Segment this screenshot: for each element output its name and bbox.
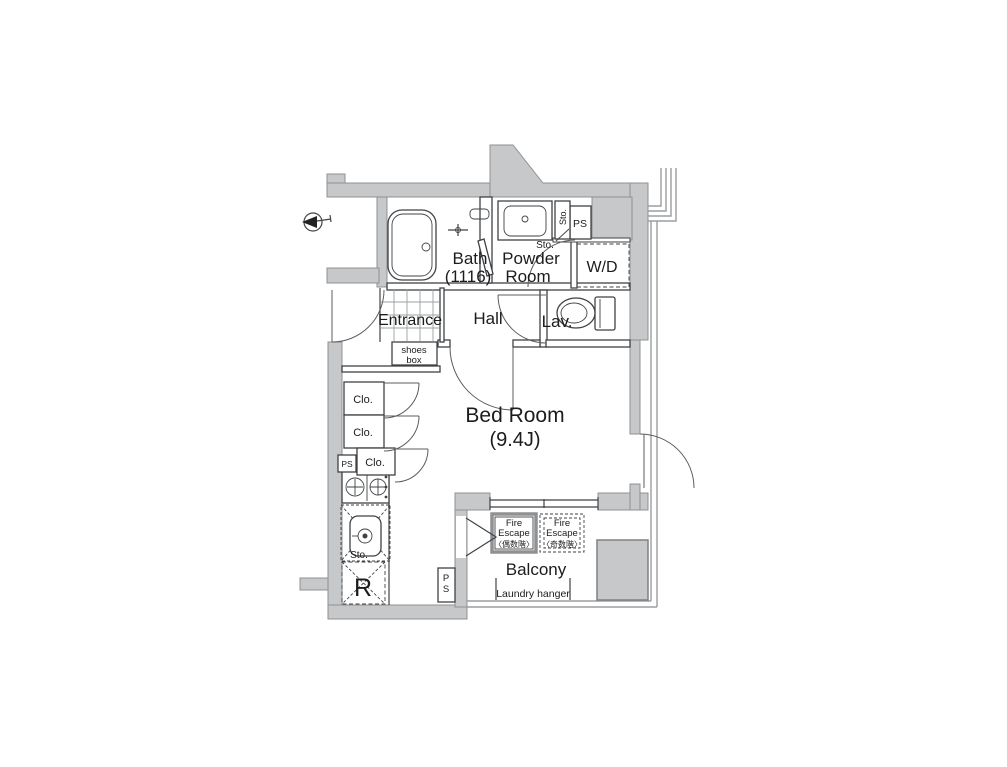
label-laundry-hanger: Laundry hanger (496, 588, 570, 600)
label-powder-2: Room (505, 267, 550, 286)
wall-stub-bottom-left (300, 578, 328, 590)
balcony-window (490, 497, 598, 510)
closet-3-door-arc (395, 449, 428, 482)
label-washer-dryer: W/D (586, 259, 617, 276)
wall-stub-left (327, 268, 379, 283)
floor-plan-canvas: Bath (1116) Powder Room W/D PS Sto. Sto.… (0, 0, 1007, 767)
boundary-elbow-2 (648, 168, 666, 211)
label-closet-3: Clo. (365, 457, 385, 469)
wall-east-bedroom (630, 340, 640, 434)
sink-faucet (363, 534, 368, 539)
north-arrow (302, 213, 331, 231)
label-bath: Bath (453, 249, 488, 268)
label-entrance: Entrance (378, 312, 442, 329)
label-sto-leader: Sto. (536, 240, 554, 251)
boundary-elbow-3 (648, 168, 671, 216)
label-hall: Hall (473, 309, 502, 328)
label-balcony: Balcony (506, 560, 567, 579)
label-closet-2: Clo. (353, 427, 373, 439)
wall-top (327, 183, 497, 197)
label-fire-even-2: Escape (498, 528, 530, 539)
label-bedroom: Bed Room (465, 404, 564, 427)
wall-bottom (328, 605, 467, 619)
label-ps-left: PS (341, 459, 353, 469)
bathtub (388, 210, 436, 280)
north-arrow-head (302, 216, 317, 228)
wall-south-pier-left (455, 493, 490, 510)
bathtub-outer (388, 210, 436, 280)
label-ps-bottom-s: S (443, 584, 449, 595)
closet-1-door-arc (384, 383, 419, 418)
label-shoes-box-2: box (406, 355, 422, 366)
shower-faucet-icon (448, 224, 468, 236)
label-powder-1: Powder (502, 249, 560, 268)
wall-right-upper (630, 183, 648, 340)
balcony-door-opening (456, 516, 466, 558)
powder-vanity-sink (498, 201, 552, 240)
boundary-elbow-1 (648, 168, 661, 206)
wall-left (328, 342, 342, 608)
label-lav: Lav. (542, 312, 573, 331)
toilet-tank (595, 297, 615, 330)
entrance-door-arc (332, 290, 384, 342)
label-sto-kitchen: Sto. (350, 550, 368, 561)
bedroom-door-arc (450, 347, 513, 410)
label-sto-vertical: Sto. (558, 209, 568, 225)
label-fire-odd-3: 〈奇数階〉 (542, 539, 582, 549)
wall-hall-bottom-right (513, 340, 540, 347)
wall-lav-bottom (546, 340, 630, 347)
east-door-arc (640, 434, 694, 488)
label-fire-odd-2: Escape (546, 528, 578, 539)
label-closet-1: Clo. (353, 394, 373, 406)
wall-corner-mass (592, 197, 632, 240)
balcony-structure-block (597, 540, 648, 600)
label-ps-top: PS (573, 218, 587, 230)
window-ticks (490, 497, 598, 510)
stove-knob-1 (385, 476, 388, 479)
wall-storage-nook (571, 240, 577, 288)
label-bedroom-size: (9.4J) (489, 429, 540, 451)
wall-east-pier (630, 484, 640, 510)
wall-below-shoes-box (342, 366, 440, 372)
lav-door-arc (498, 295, 546, 343)
wall-top-protrusion (490, 145, 648, 197)
stove-knob-3 (385, 496, 388, 499)
floor-plan-drawing: Bath (1116) Powder Room W/D PS Sto. Sto.… (0, 0, 1007, 767)
label-ps-bottom-p: P (443, 573, 449, 584)
closet-2-door-arc (384, 416, 419, 451)
stove-knob-2 (385, 486, 388, 489)
boundary-elbow-4 (648, 168, 676, 221)
label-refrigerator: R (354, 574, 372, 602)
label-bath-size: (1116) (445, 267, 492, 286)
faucet-cross (448, 224, 468, 236)
label-fire-even-3: 〈偶数階〉 (494, 539, 534, 549)
